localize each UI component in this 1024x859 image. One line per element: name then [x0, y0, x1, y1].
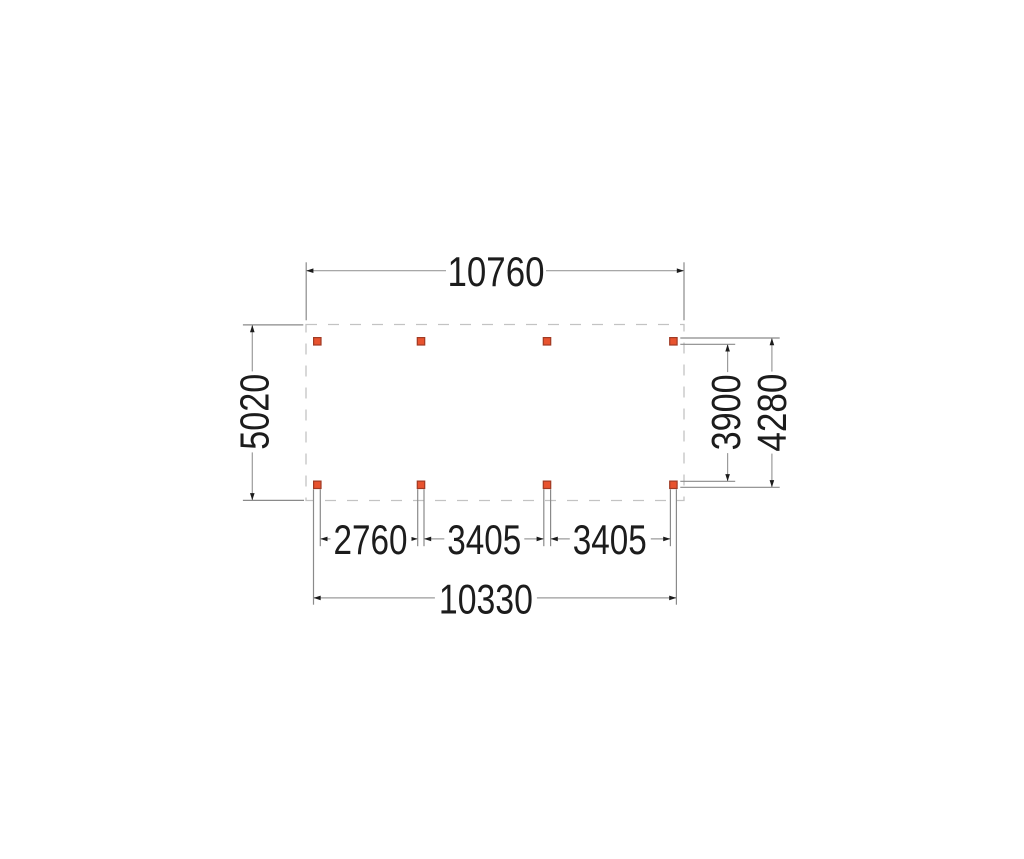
- svg-text:2760: 2760: [334, 516, 408, 563]
- svg-text:10760: 10760: [448, 248, 545, 295]
- svg-text:3900: 3900: [703, 374, 749, 450]
- svg-text:4280: 4280: [749, 374, 795, 452]
- svg-text:10330: 10330: [439, 575, 533, 622]
- svg-text:3405: 3405: [447, 516, 521, 563]
- svg-text:3405: 3405: [573, 516, 647, 563]
- svg-text:5020: 5020: [231, 374, 277, 450]
